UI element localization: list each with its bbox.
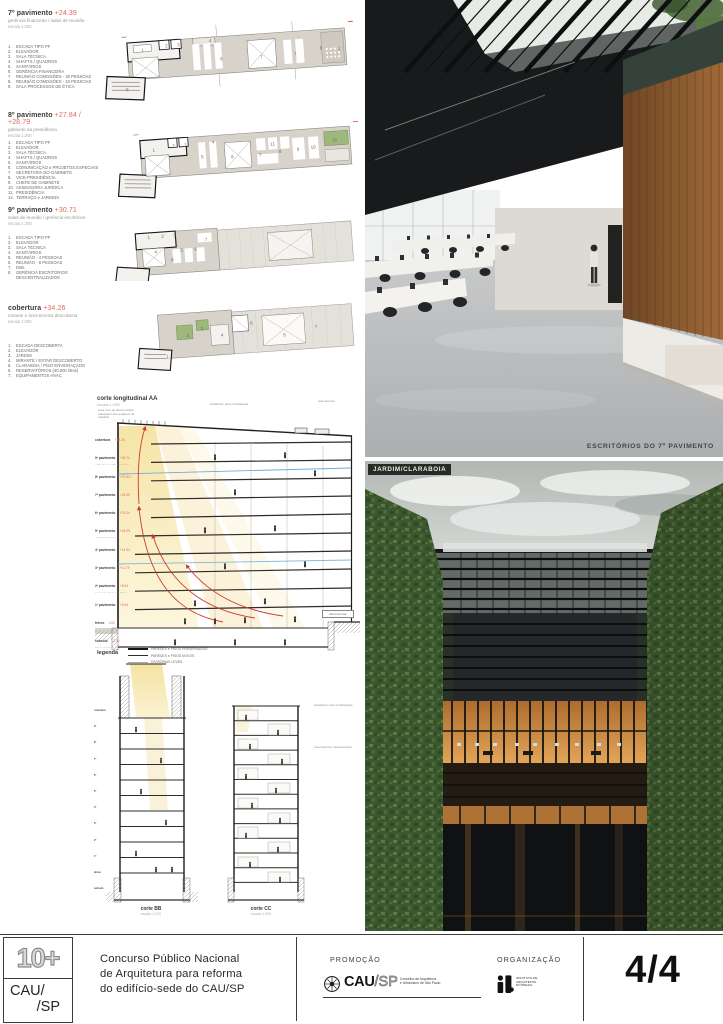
- floor-label: 7º pavimento +24.39 gerência financeira …: [94, 747, 107, 763]
- section-bb-label: corte BB escala 1:250: [118, 906, 184, 916]
- floor-label: 8º pavimento +27.84 / +28.79 gabinete da…: [94, 730, 107, 746]
- section-cc-drawing: [222, 692, 308, 904]
- floor-label: subsolo -3.30 áreas técnicas / apoio / m…: [94, 876, 107, 892]
- plan-9-title: 9º pavimento +30.71: [8, 207, 100, 214]
- page-number: 4/4: [583, 949, 723, 992]
- plan-9-drawing: 12345678: [108, 203, 360, 281]
- svg-text:11: 11: [270, 141, 276, 146]
- floor-label: 6º pavimento +21.24 gerências administra…: [94, 763, 107, 779]
- plan-cobertura-subtitle: mirante e área técnica descoberta: [8, 313, 100, 318]
- floor-label: 9º pavimento +30.71 salas de reunião / g…: [94, 714, 107, 730]
- plan-8-drawing: 123456789101112: [113, 108, 360, 203]
- logo-10plus-cell: 10+: [4, 938, 72, 979]
- plan-8-scale: escala 1:250: [8, 133, 100, 138]
- floor-label: 8º pavimento +27.84 / +28.79 gabinete da…: [95, 465, 141, 483]
- plan-8-title: 8º pavimento +27.84 / +28.79: [8, 112, 100, 126]
- floor-label: 6º pavimento +21.24 gerências administra…: [95, 501, 141, 519]
- plan-9-scale: escala 1:250: [8, 221, 100, 226]
- plan-cobertura-drawing: 1234567: [133, 281, 360, 389]
- floor-label: 4º pavimento +14.94 atendimento e fiscal…: [94, 795, 107, 811]
- org-label: ORGANIZAÇÃO: [497, 955, 561, 964]
- legend-swatch-new: [128, 655, 148, 656]
- plan-9-elevation: +30.71: [55, 207, 77, 214]
- plan-cobertura-title: cobertura +34.26: [8, 305, 100, 312]
- room-list-item: 7.EQUIPAMENTOS HVAC: [8, 373, 100, 378]
- floor-label: 3º pavimento +11.79 plenário: [94, 811, 107, 827]
- promo-sp-text: /SP: [375, 975, 398, 990]
- section-bb-floor-labels: cobertura +34.26 mirante e área técnica …: [94, 698, 107, 892]
- competition-title: Concurso Público Nacional de Arquitetura…: [100, 952, 300, 996]
- floor-label: 5º pavimento +18.09 gerências técnicas: [94, 779, 107, 795]
- floor-label: cobertura +34.26 mirante e área técnica …: [94, 698, 107, 714]
- plan-7-drawing: 1234567789: [98, 6, 360, 106]
- section-aa-floor-labels: cobertura +34.26 mirante e área técnica …: [95, 428, 141, 648]
- presentation-board: { "plans": [ { "title": "7º pavimento", …: [0, 0, 723, 1023]
- iab-logo-icon: [497, 975, 514, 994]
- promo-cau-text: CAU: [344, 975, 375, 990]
- section-aa-scale: escala 1:250: [97, 402, 157, 407]
- causp-line2: /SP: [10, 999, 66, 1015]
- section-bb-drawing: [106, 660, 198, 904]
- floor-label: 4º pavimento +14.94 atendimento e fiscal…: [95, 538, 141, 556]
- floor-label: cobertura +34.26 mirante e área técnica …: [95, 428, 141, 446]
- floor-label: 5º pavimento +18.09 gerências técnicas: [95, 519, 141, 537]
- floor-label: 9º pavimento +30.71 salas de reunião / g…: [95, 446, 141, 464]
- photo-garden-label: JARDIM/CLARABOIA: [368, 464, 451, 475]
- section-aa-annotation-3: área técnica: [318, 400, 354, 404]
- section-aa-annotation-2: claraboia / piso envidraçado: [208, 403, 250, 407]
- promo-cau-logo: CAU/SP Conselho de Arquitetura e Urbanis…: [323, 975, 440, 993]
- floor-label: 2º pavimento +8.64 áreas de apoio / mult…: [95, 574, 141, 592]
- street-label: Rua Formosa: [322, 610, 354, 618]
- section-cc-note-2: reservatórios / área técnica: [314, 746, 356, 750]
- plan-8-room-list: 1.ESCADA TIPO PF2.ELEVADOR3.SALA TÉCNICA…: [8, 140, 100, 200]
- cau-emblem-icon: [323, 975, 341, 993]
- section-cc-label: corte CC escala 1:250: [228, 906, 294, 916]
- floor-label: 1º pavimento +5.49 sistema de informação…: [94, 844, 107, 860]
- promo-label: PROMOÇÃO: [330, 955, 381, 964]
- plan-7-subtitle: gerência financeira / salas de reunião: [8, 18, 100, 23]
- org-iab-logo: INSTITUTO DE ARQUITETOS DO BRASIL: [497, 975, 537, 994]
- floor-label: 7º pavimento +24.39 gerência financeira …: [95, 483, 141, 501]
- plan-cobertura-elevation: +34.26: [43, 305, 65, 312]
- plan-8-subtitle: gabinete da presidência: [8, 127, 100, 132]
- room-list-item: 8.GERÊNCIA ESCRITÓRIOS DESCENTRALIZADOS: [8, 270, 88, 280]
- plan-7-scale: escala 1:250: [8, 24, 100, 29]
- logo-10plus: 10+: [17, 943, 60, 974]
- photo-offices-caption: ESCRITÓRIOS DO 7º PAVIMENTO: [540, 443, 714, 450]
- plan-cobertura-scale: escala 1:250: [8, 319, 100, 324]
- footer-divider-1: [296, 937, 297, 1021]
- legend-title: legenda: [97, 650, 118, 656]
- plan-7-room-list: 1.ESCADA TIPO PF2.ELEVADOR3.SALA TÉCNICA…: [8, 44, 100, 89]
- iab-text: INSTITUTO DE ARQUITETOS DO BRASIL: [516, 977, 537, 994]
- plan-9-room-list: 1.ESCADA TIPO PF2.ELEVADOR3.SALA TÉCNICA…: [8, 235, 88, 280]
- promo-underline: [323, 997, 481, 998]
- footer: 10+ CAU/ /SP Concurso Público Nacional d…: [0, 934, 723, 1024]
- photo-garden-skylight: [365, 461, 723, 931]
- causp-line1: CAU/: [10, 983, 66, 999]
- promo-cau-desc: Conselho de Arquitetura e Urbanismo de S…: [400, 978, 441, 986]
- floor-label: 2º pavimento +8.64 áreas de apoio / mult…: [94, 828, 107, 844]
- floor-label: 3º pavimento +11.79 plenário: [95, 556, 141, 574]
- section-cc-note-1: claraboia / piso envidraçado: [314, 704, 356, 708]
- plan-cobertura-room-list: 1.ESCADA DESCOBERTA2.ELEVADOR3.JARDIM4.M…: [8, 343, 100, 378]
- floor-label: térreo 0.00 espaço compartilhado de trab…: [94, 860, 107, 876]
- plan-9-subtitle: salas de reunião / gerência escritórios: [8, 215, 100, 220]
- plan-9-header: 9º pavimento +30.71 salas de reunião / g…: [8, 207, 100, 226]
- plan-7-elevation: +24.39: [55, 10, 77, 17]
- plan-8-header: 8º pavimento +27.84 / +28.79 gabinete da…: [8, 112, 100, 138]
- logo-causp-cell: CAU/ /SP: [4, 979, 72, 1019]
- plan-cobertura-header: cobertura +34.26 mirante e área técnica …: [8, 305, 100, 324]
- photo-offices: [365, 0, 723, 457]
- floor-label: subsolo -3.30 áreas técnicas / apoio / m…: [95, 629, 141, 647]
- section-aa-header: corte longitudinal AA escala 1:250: [97, 396, 157, 407]
- floor-label: térreo 0.00 espaço compartilhado de trab…: [95, 611, 141, 629]
- floor-label: 1º pavimento +5.49 sistema de informação…: [95, 593, 141, 611]
- svg-text:10: 10: [310, 144, 316, 149]
- plan-7-title: 7º pavimento +24.39: [8, 10, 100, 17]
- room-list-item: 12.TERRAÇO e JARDINS: [8, 195, 100, 200]
- legend-swatch-preserved: [128, 648, 148, 651]
- svg-text:12: 12: [332, 137, 338, 142]
- plan-7-header: 7º pavimento +24.39 gerência financeira …: [8, 10, 100, 29]
- footer-logo-box: 10+ CAU/ /SP: [3, 937, 73, 1023]
- room-list-item: 9.SALA PROCESSOS DE ÉTICA: [8, 84, 100, 89]
